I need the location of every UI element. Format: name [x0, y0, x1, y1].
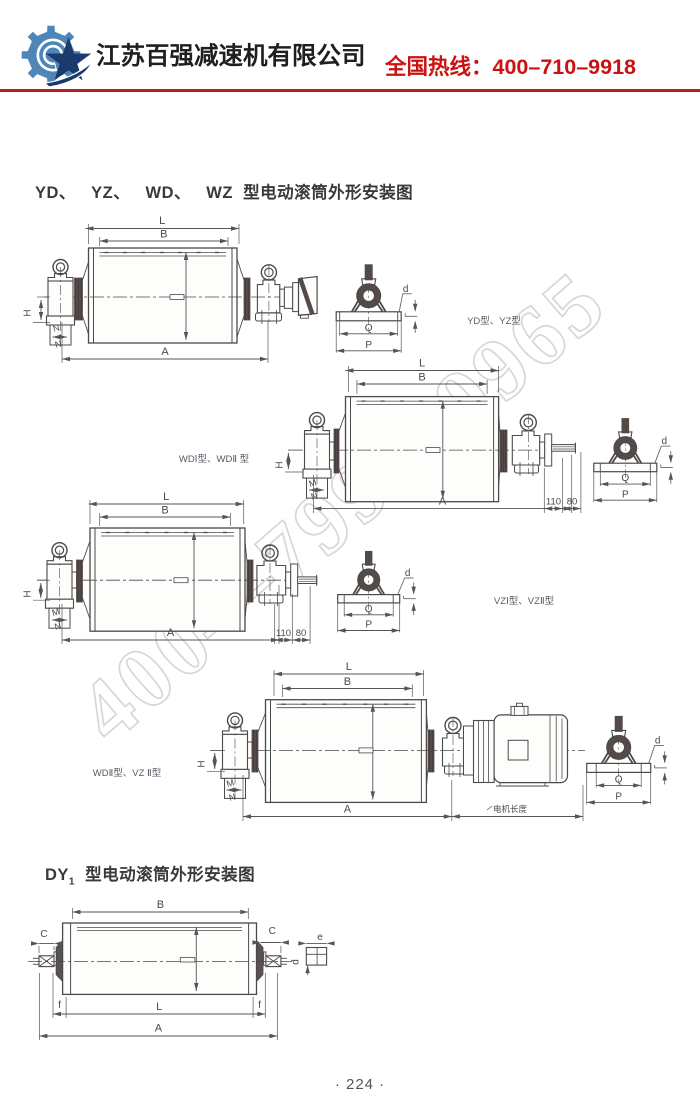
svg-text:H: H: [23, 590, 34, 597]
svg-text:B: B: [157, 899, 164, 911]
svg-text:Q: Q: [615, 774, 623, 785]
svg-text:d: d: [662, 436, 668, 447]
svg-text:WDⅠ型、WDⅡ 型: WDⅠ型、WDⅡ 型: [179, 454, 250, 465]
svg-text:f: f: [258, 1000, 261, 1011]
svg-text:d: d: [291, 959, 302, 965]
svg-text:d: d: [655, 735, 661, 746]
svg-text:d: d: [403, 284, 409, 295]
svg-text:110: 110: [276, 628, 291, 639]
svg-text:YD型、YZ型: YD型、YZ型: [467, 316, 521, 327]
svg-text:C: C: [40, 929, 47, 940]
svg-text:A: A: [344, 804, 352, 816]
svg-text:80: 80: [567, 497, 578, 508]
svg-text:VZⅠ型、VZⅡ型: VZⅠ型、VZⅡ型: [494, 596, 555, 607]
svg-text:A: A: [167, 627, 175, 639]
svg-text:H: H: [275, 461, 286, 468]
svg-text:A: A: [161, 346, 169, 358]
svg-text:B: B: [160, 229, 167, 241]
svg-text:P: P: [365, 620, 372, 631]
svg-text:P: P: [365, 340, 372, 351]
svg-text:WDⅡ型、VZ Ⅱ型: WDⅡ型、VZ Ⅱ型: [93, 768, 162, 779]
svg-text:80: 80: [296, 628, 307, 639]
svg-text:P: P: [615, 791, 622, 802]
svg-text:Q: Q: [365, 604, 373, 615]
svg-text:d: d: [405, 568, 411, 579]
svg-text:B: B: [344, 676, 351, 688]
svg-text:Q: Q: [621, 473, 629, 484]
svg-text:A: A: [155, 1023, 163, 1035]
svg-text:C: C: [269, 926, 276, 937]
svg-text:H: H: [197, 760, 208, 767]
svg-text:B: B: [161, 505, 168, 517]
svg-text:110: 110: [546, 497, 561, 508]
svg-text:f: f: [58, 1000, 61, 1011]
svg-text:e: e: [317, 932, 323, 943]
svg-text:L: L: [346, 661, 352, 673]
svg-text:L: L: [419, 358, 425, 370]
svg-text:L: L: [163, 491, 169, 503]
svg-text:H: H: [23, 309, 34, 316]
svg-text:电机长度: 电机长度: [493, 804, 528, 814]
svg-text:A: A: [439, 496, 447, 508]
svg-text:L: L: [156, 1001, 162, 1013]
svg-text:P: P: [622, 489, 629, 500]
svg-text:L: L: [159, 215, 165, 227]
svg-text:Q: Q: [365, 323, 373, 334]
svg-text:B: B: [418, 372, 425, 384]
